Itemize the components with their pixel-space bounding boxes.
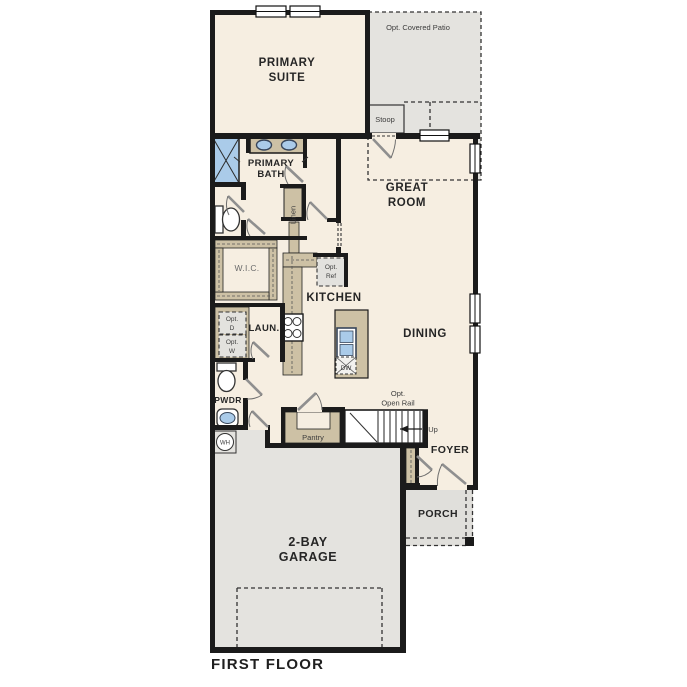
window-icon [470, 326, 480, 353]
garage-label-2: GARAGE [279, 550, 337, 564]
opt-washer-label-2: W [229, 348, 236, 355]
kitchen-label: KITCHEN [306, 292, 361, 304]
window-icon [290, 6, 320, 17]
floor-plan-page: Opt. Covered Patio Stoop PRIMARY SUITE P… [0, 0, 687, 687]
opt-ref-label-1: Opt. [325, 264, 337, 271]
stoop-label: Stoop [375, 115, 395, 124]
opt-dryer-label-2: D [230, 325, 235, 332]
laundry-label: LAUN. [248, 323, 279, 334]
dining-label: DINING [403, 328, 447, 340]
opt-washer-label-1: Opt. [226, 339, 238, 346]
opt-ref-label-2: Ref [326, 273, 336, 280]
up-label: Up [428, 425, 438, 434]
opt-ref-box [317, 258, 345, 286]
primary-suite-label-1: PRIMARY [259, 57, 316, 69]
great-room-label-2: ROOM [388, 197, 426, 209]
shower-icon [213, 138, 239, 183]
powder-toilet-icon [217, 363, 236, 392]
staircase [345, 410, 428, 443]
foyer-label: FOYER [431, 444, 469, 456]
pedestal-sink-icon [217, 409, 238, 427]
powder-label: PWDR [214, 395, 242, 405]
opt-open-rail-label-2: Open Rail [381, 399, 415, 408]
opt-open-rail-label-1: Opt. [391, 389, 405, 398]
pantry-label: Pantry [302, 433, 324, 442]
primary-bath-label-1: PRIMARY [248, 158, 295, 169]
window-icon [420, 130, 449, 141]
patio-label: Opt. Covered Patio [386, 23, 450, 32]
plan-title: FIRST FLOOR [211, 656, 324, 673]
primary-bath-label-2: BATH [257, 169, 284, 180]
wic-label: W.I.C. [235, 263, 260, 273]
window-icon [470, 294, 480, 323]
water-heater-label: WH [220, 441, 230, 447]
linen-label: Linen [289, 206, 298, 224]
primary-suite-label-2: SUITE [269, 72, 306, 84]
great-room-label-1: GREAT [386, 182, 428, 194]
floor-plan: Opt. Covered Patio Stoop PRIMARY SUITE P… [0, 0, 687, 687]
opt-dryer-label-1: Opt. [226, 316, 238, 323]
island-sink-icon [337, 328, 356, 358]
range-icon [282, 314, 303, 341]
window-icon [470, 144, 480, 173]
dishwasher-label: DW [341, 365, 353, 372]
garage-label-1: 2-BAY [288, 535, 327, 549]
window-icon [256, 6, 286, 17]
main-floor [215, 137, 473, 443]
porch-label: PORCH [418, 508, 458, 520]
porch-column [465, 537, 474, 546]
